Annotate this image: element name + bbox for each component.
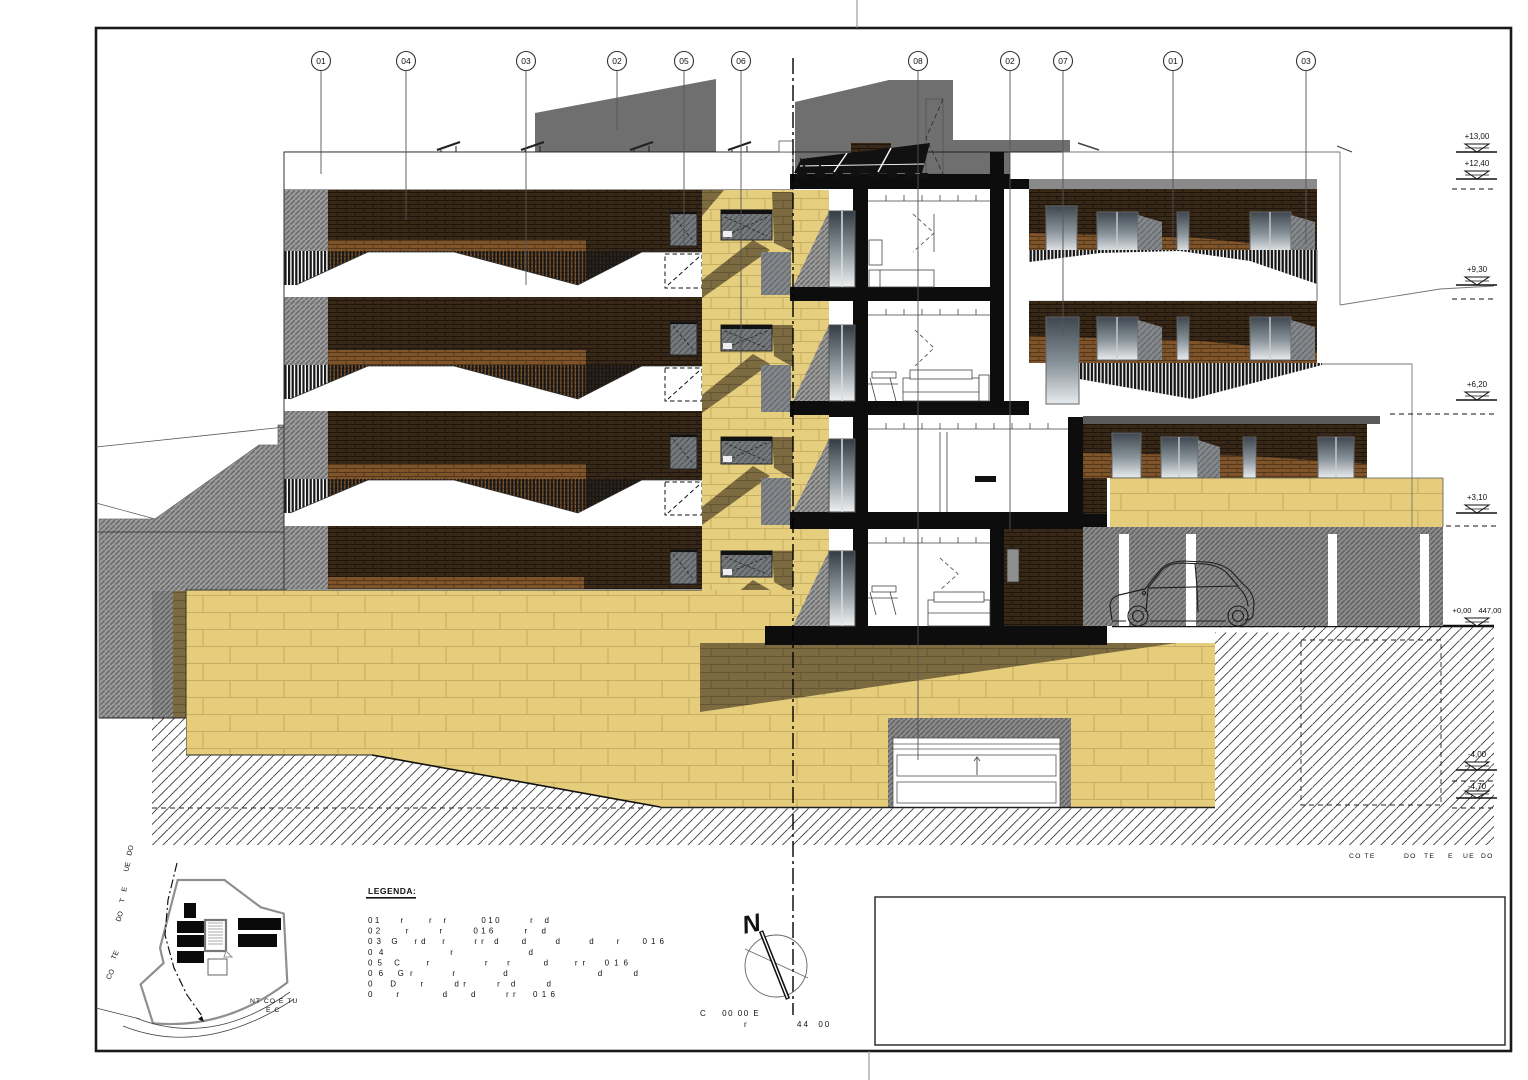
svg-text:E C: E C bbox=[266, 1007, 280, 1014]
svg-text:+13,00: +13,00 bbox=[1465, 132, 1490, 141]
svg-text:+9,30: +9,30 bbox=[1467, 265, 1488, 274]
svg-text:01 r r r 010: 01 r r r 010 r d bbox=[368, 916, 549, 925]
svg-text:02: 02 bbox=[1005, 56, 1015, 66]
svg-text:+0,00: +0,00 bbox=[1453, 606, 1472, 615]
svg-text:04: 04 bbox=[401, 56, 411, 66]
svg-text:-4,00: -4,00 bbox=[1468, 750, 1487, 759]
svg-text:02 r r 016 r d: 02 r r 016 r d bbox=[368, 927, 546, 936]
svg-text:DO: DO bbox=[1481, 853, 1494, 860]
svg-text:05: 05 bbox=[679, 56, 689, 66]
svg-text:+3,10: +3,10 bbox=[1467, 493, 1488, 502]
svg-text:07: 07 bbox=[1058, 56, 1068, 66]
svg-text:TE: TE bbox=[1424, 853, 1435, 860]
svg-text:03: 03 bbox=[521, 56, 531, 66]
svg-text:-4,70: -4,70 bbox=[1468, 782, 1487, 791]
svg-text:NT CO E TU: NT CO E TU bbox=[250, 998, 298, 1005]
svg-text:C 00 00 E: C 00 00 E bbox=[700, 1009, 760, 1018]
svg-text:UE: UE bbox=[1463, 853, 1475, 860]
svg-text:E: E bbox=[1448, 853, 1454, 860]
svg-text:08: 08 bbox=[913, 56, 923, 66]
svg-text:447,00: 447,00 bbox=[1479, 606, 1502, 615]
svg-text:+12,40: +12,40 bbox=[1465, 159, 1490, 168]
svg-text:01: 01 bbox=[316, 56, 326, 66]
svg-text:LEGENDA:: LEGENDA: bbox=[368, 886, 416, 896]
svg-text:01: 01 bbox=[1168, 56, 1178, 66]
svg-text:44 00: 44 00 bbox=[797, 1020, 831, 1029]
svg-text:02: 02 bbox=[612, 56, 622, 66]
svg-text:03: 03 bbox=[1301, 56, 1311, 66]
svg-text:06: 06 bbox=[736, 56, 746, 66]
svg-text:r: r bbox=[744, 1020, 747, 1029]
svg-text:CO TE: CO TE bbox=[1349, 853, 1376, 860]
svg-text:DO: DO bbox=[1404, 853, 1417, 860]
svg-text:+6,20: +6,20 bbox=[1467, 380, 1488, 389]
